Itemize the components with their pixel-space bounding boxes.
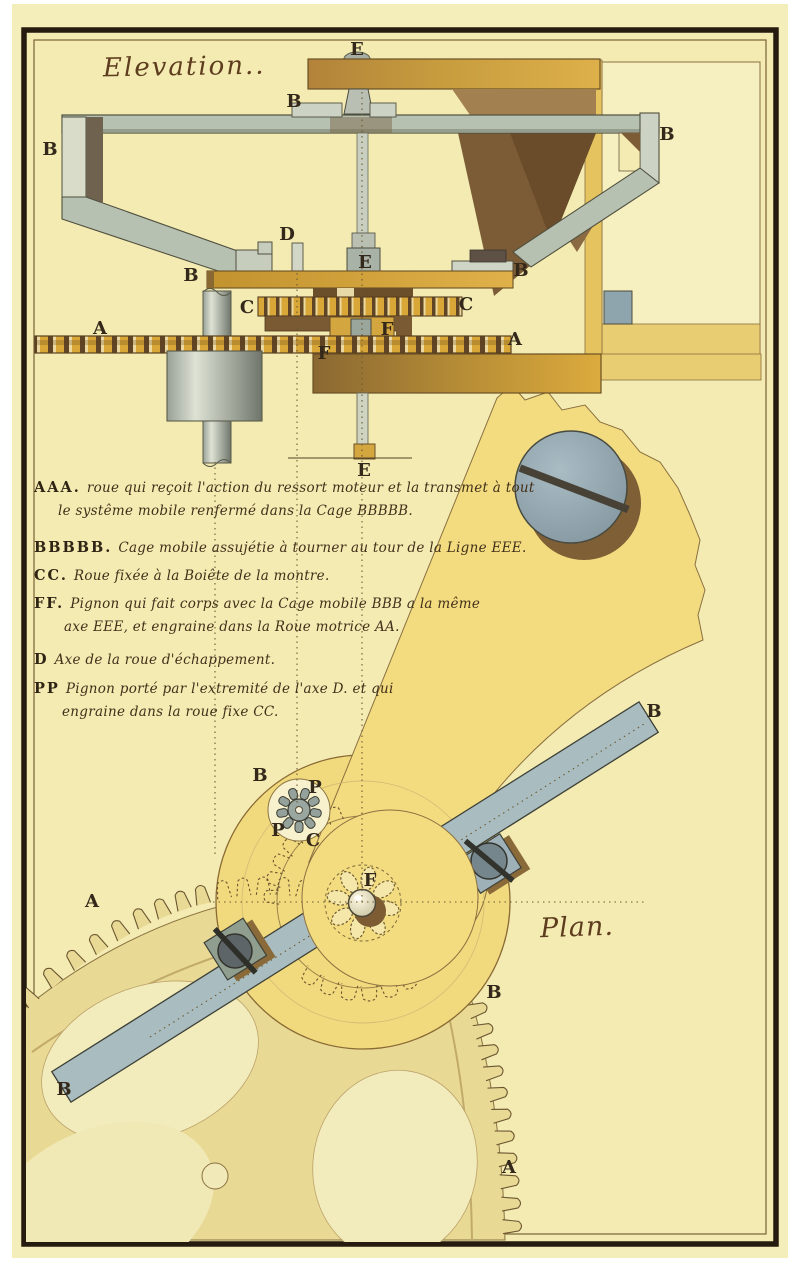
escape-axis-d [292,243,303,272]
label-c-left: C [240,297,254,318]
legend-key: CC. [34,567,68,584]
label-b-platform-right: B [513,260,528,281]
label-b-bridge: B [286,91,301,112]
case-block [604,291,632,324]
legend-key: AAA. [34,479,81,496]
label-b-cage: B [252,765,267,786]
shadow-wash [452,89,596,115]
wheel-pivot-hole [202,1163,228,1189]
legend-key: PP [34,680,60,697]
legend-text: axe EEE, et engraine dans la Roue motric… [64,616,480,639]
label-a-left: A [92,318,108,339]
tourbillon-drawing: E B B B D E B B C C A A F F E B P P C F … [0,0,799,1280]
legend-entry-aaa: AAA.roue qui reçoit l'action du ressort … [34,476,535,523]
label-b-left: B [42,139,57,160]
label-b-cage-lower: B [486,982,501,1003]
drawing-canvas: E B B B D E B B C C A A F F E B P P C F … [0,0,799,1280]
legend-key: BBBBB. [34,539,112,556]
elevation-title: Elevation.. [103,51,266,84]
legend-text: Axe de la roue d'échappement. [55,652,276,668]
legend-key: D [34,651,49,668]
legend-text: le systême mobile renfermé dans la Cage … [58,500,535,523]
legend-text: roue qui reçoit l'action du ressort mote… [87,480,535,496]
legend-entry-cc: CC.Roue fixée à la Boiête de la montre. [34,564,330,588]
label-b-bar-left: B [56,1079,71,1100]
bottom-plate [313,354,601,393]
legend-text: Pignon qui fait corps avec la Cage mobil… [70,596,480,612]
label-b-bar-right: B [646,701,661,722]
label-f-left: F [318,343,331,364]
legend-entry-ff: FF.Pignon qui fait corps avec la Cage mo… [34,592,480,639]
cage-platform [207,271,513,288]
fixed-wheel-c-band [258,297,462,316]
legend-text: engraine dans la roue fixe CC. [62,701,394,724]
legend-text: Pignon porté par l'extremité de l'axe D.… [66,681,394,697]
legend-entry-d: DAxe de la roue d'échappement. [34,648,275,672]
label-b-right: B [659,124,674,145]
label-f-right: F [381,319,394,340]
top-bracket [308,59,600,89]
label-e-mid: E [358,252,372,273]
label-a-wheel-right: A [501,1157,517,1178]
label-a-right: A [507,329,523,350]
plan-title: Plan. [539,911,614,945]
label-a-wheel-left: A [84,891,100,912]
label-c-right: C [459,294,473,315]
legend-text: Cage mobile assujétie à tourner au tour … [118,540,526,556]
label-f-centre: F [364,870,377,891]
label-c-fixedwheel: C [306,830,320,851]
label-p-pinion: P [308,777,322,798]
label-e-top: E [350,39,364,60]
legend-key: FF. [34,595,64,612]
legend-text: Roue fixée à la Boiête de la montre. [74,568,330,584]
label-d-axis: D [279,224,295,245]
legend-entry-pp: PPPignon porté par l'extremité de l'axe … [34,677,394,724]
legend-entry-bbbbb: BBBBB.Cage mobile assujétie à tourner au… [34,536,527,560]
label-p-pinion2: P [271,820,285,841]
label-b-platform-left: B [183,265,198,286]
